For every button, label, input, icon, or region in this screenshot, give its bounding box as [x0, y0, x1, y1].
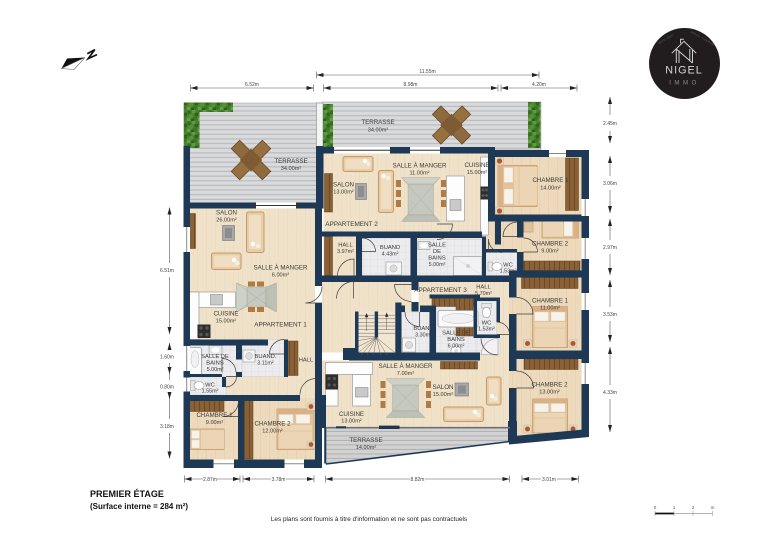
svg-text:3.30m²: 3.30m² [415, 333, 432, 339]
svg-text:SALON: SALON [433, 384, 454, 391]
svg-text:9.00m²: 9.00m² [206, 420, 224, 426]
svg-text:15.00m²: 15.00m² [216, 319, 237, 325]
svg-text:2: 2 [692, 505, 695, 510]
svg-text:BAINS: BAINS [206, 361, 224, 367]
svg-text:HALL: HALL [338, 243, 353, 249]
svg-text:3.06m: 3.06m [603, 181, 617, 187]
svg-text:12.00m²: 12.00m² [262, 429, 283, 435]
svg-text:1.53m²: 1.53m² [478, 327, 495, 333]
svg-text:BAINS: BAINS [447, 337, 465, 343]
svg-text:CHAMBRE 2: CHAMBRE 2 [532, 241, 569, 248]
svg-text:8.98m: 8.98m [404, 82, 418, 88]
svg-text:CHAMBRE 1: CHAMBRE 1 [532, 298, 569, 305]
svg-text:6.51m: 6.51m [160, 268, 174, 274]
svg-text:SALLE À MANGER: SALLE À MANGER [379, 363, 434, 370]
svg-text:14.00m²: 14.00m² [356, 445, 377, 451]
svg-text:APPARTEMENT 3: APPARTEMENT 3 [414, 287, 467, 294]
svg-text:BAINS: BAINS [428, 256, 446, 262]
svg-text:CUISINE: CUISINE [339, 411, 364, 418]
svg-text:15.00m²: 15.00m² [433, 392, 454, 398]
svg-text:TERRASSE: TERRASSE [274, 158, 307, 165]
svg-text:CHAMBRE 1: CHAMBRE 1 [196, 412, 233, 419]
svg-text:8.82m: 8.82m [411, 477, 425, 483]
svg-text:9.00m²: 9.00m² [541, 249, 559, 255]
svg-text:Les plans sont fournis à titre: Les plans sont fournis à titre d'informa… [271, 516, 467, 523]
svg-text:SALON: SALON [333, 182, 354, 189]
svg-text:APPARTEMENT 2: APPARTEMENT 2 [325, 221, 378, 228]
svg-text:11.55m: 11.55m [419, 69, 435, 75]
svg-text:CHAMBRE 1: CHAMBRE 1 [532, 177, 569, 184]
svg-text:NIGEL: NIGEL [665, 65, 702, 77]
svg-text:13.00m²: 13.00m² [341, 419, 362, 425]
svg-text:CHAMBRE 2: CHAMBRE 2 [254, 421, 291, 428]
svg-text:0: 0 [654, 505, 657, 510]
svg-text:1.55m²: 1.55m² [202, 389, 219, 395]
svg-text:34.00m²: 34.00m² [281, 166, 302, 172]
svg-text:0.80m: 0.80m [160, 385, 174, 391]
svg-text:TERRASSE: TERRASSE [349, 437, 382, 444]
svg-text:4.33m: 4.33m [603, 390, 617, 396]
svg-text:PREMIER ÉTAGE: PREMIER ÉTAGE [90, 489, 164, 499]
svg-text:2.45m: 2.45m [603, 121, 617, 127]
svg-text:SALLE À MANGER: SALLE À MANGER [393, 163, 448, 170]
svg-text:3.11m²: 3.11m² [257, 361, 274, 367]
svg-text:2.87m: 2.87m [203, 477, 217, 483]
svg-text:SALLE DE: SALLE DE [201, 354, 229, 360]
svg-text:26.00m²: 26.00m² [216, 218, 237, 224]
svg-text:1.60m: 1.60m [160, 355, 174, 361]
svg-text:34.00m²: 34.00m² [368, 128, 389, 134]
svg-text:4.43m²: 4.43m² [382, 252, 399, 258]
svg-text:13.00m²: 13.00m² [539, 390, 560, 396]
svg-text:3.97m²: 3.97m² [337, 249, 354, 255]
svg-text:CUISINE: CUISINE [464, 162, 489, 169]
svg-text:15.00m²: 15.00m² [467, 170, 488, 176]
svg-text:6.52m: 6.52m [245, 82, 259, 88]
svg-text:3.78m: 3.78m [272, 477, 286, 483]
svg-text:SALLE DE: SALLE DE [442, 331, 470, 337]
svg-text:5.00m²: 5.00m² [207, 367, 224, 373]
svg-text:3.01m: 3.01m [542, 477, 556, 483]
svg-text:CUISINE: CUISINE [213, 311, 238, 318]
svg-text:4.20m: 4.20m [532, 82, 546, 88]
svg-text:1: 1 [673, 505, 676, 510]
svg-text:5.70m²: 5.70m² [475, 291, 492, 297]
svg-text:11.00m²: 11.00m² [409, 171, 429, 177]
svg-text:2.97m: 2.97m [603, 245, 617, 251]
svg-text:SALLE: SALLE [428, 243, 446, 249]
svg-text:IMMO: IMMO [669, 80, 699, 87]
svg-text:APPARTEMENT 1: APPARTEMENT 1 [254, 322, 307, 329]
svg-text:BUAND: BUAND [380, 245, 400, 251]
svg-text:11.00m²: 11.00m² [540, 306, 560, 312]
svg-text:(Surface interne = 284 m²): (Surface interne = 284 m²) [90, 502, 188, 511]
svg-text:SALLE À MANGER: SALLE À MANGER [254, 265, 309, 272]
svg-text:3.18m: 3.18m [160, 424, 174, 430]
svg-text:DE: DE [433, 249, 441, 255]
svg-text:6.00m²: 6.00m² [272, 273, 290, 279]
svg-text:1.53m²: 1.53m² [500, 269, 517, 275]
svg-text:14.00m²: 14.00m² [540, 186, 561, 192]
svg-text:BUAND: BUAND [413, 326, 433, 332]
svg-text:CHAMBRE 2: CHAMBRE 2 [531, 382, 568, 389]
svg-text:TERRASSE: TERRASSE [361, 119, 394, 126]
svg-text:6.00m²: 6.00m² [448, 344, 465, 350]
svg-text:HALL: HALL [476, 285, 491, 291]
svg-text:5.00m²: 5.00m² [429, 262, 446, 268]
svg-text:7.00m²: 7.00m² [397, 371, 415, 377]
svg-text:3.53m: 3.53m [603, 312, 617, 318]
svg-text:HALL: HALL [299, 358, 314, 364]
svg-text:m: m [711, 505, 715, 510]
svg-text:BUAND.: BUAND. [255, 354, 277, 360]
svg-text:SALON: SALON [216, 210, 237, 217]
svg-text:13.00m²: 13.00m² [333, 190, 354, 196]
